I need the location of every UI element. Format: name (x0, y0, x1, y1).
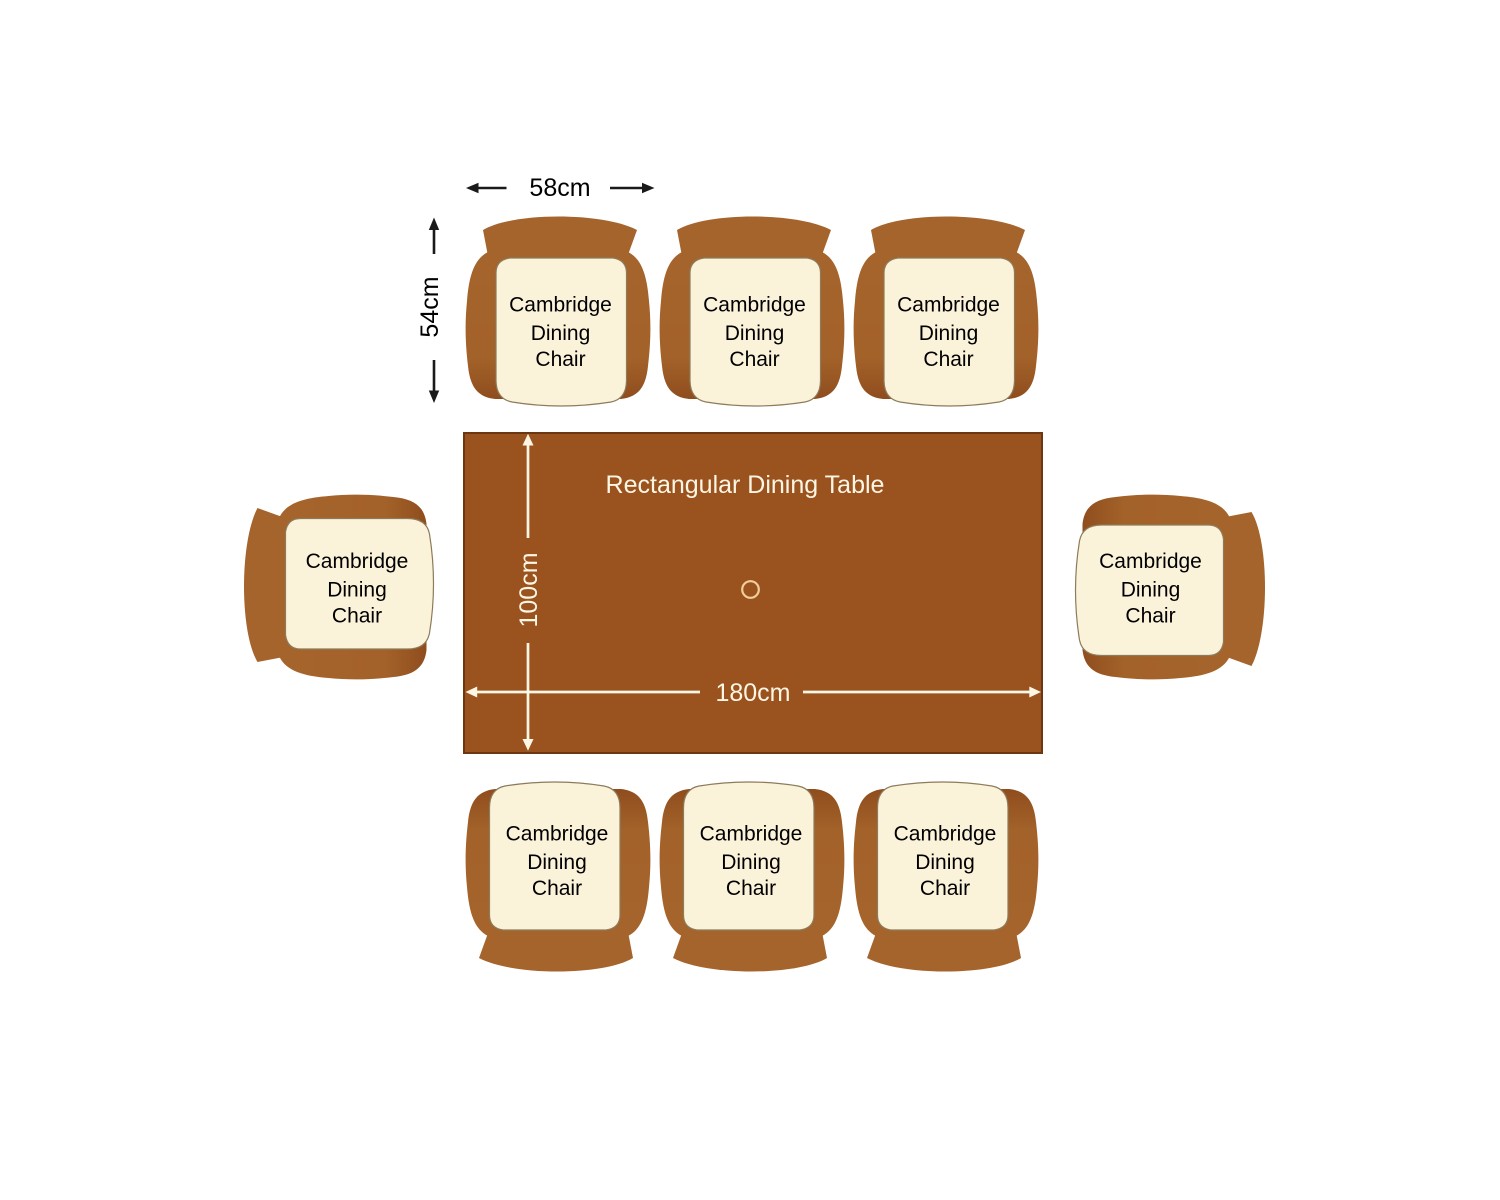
svg-text:Rectangular Dining Table: Rectangular Dining Table (606, 471, 885, 499)
svg-text:58cm: 58cm (529, 174, 590, 202)
svg-text:180cm: 180cm (715, 679, 790, 707)
svg-text:54cm: 54cm (416, 276, 444, 337)
svg-text:100cm: 100cm (515, 552, 543, 627)
